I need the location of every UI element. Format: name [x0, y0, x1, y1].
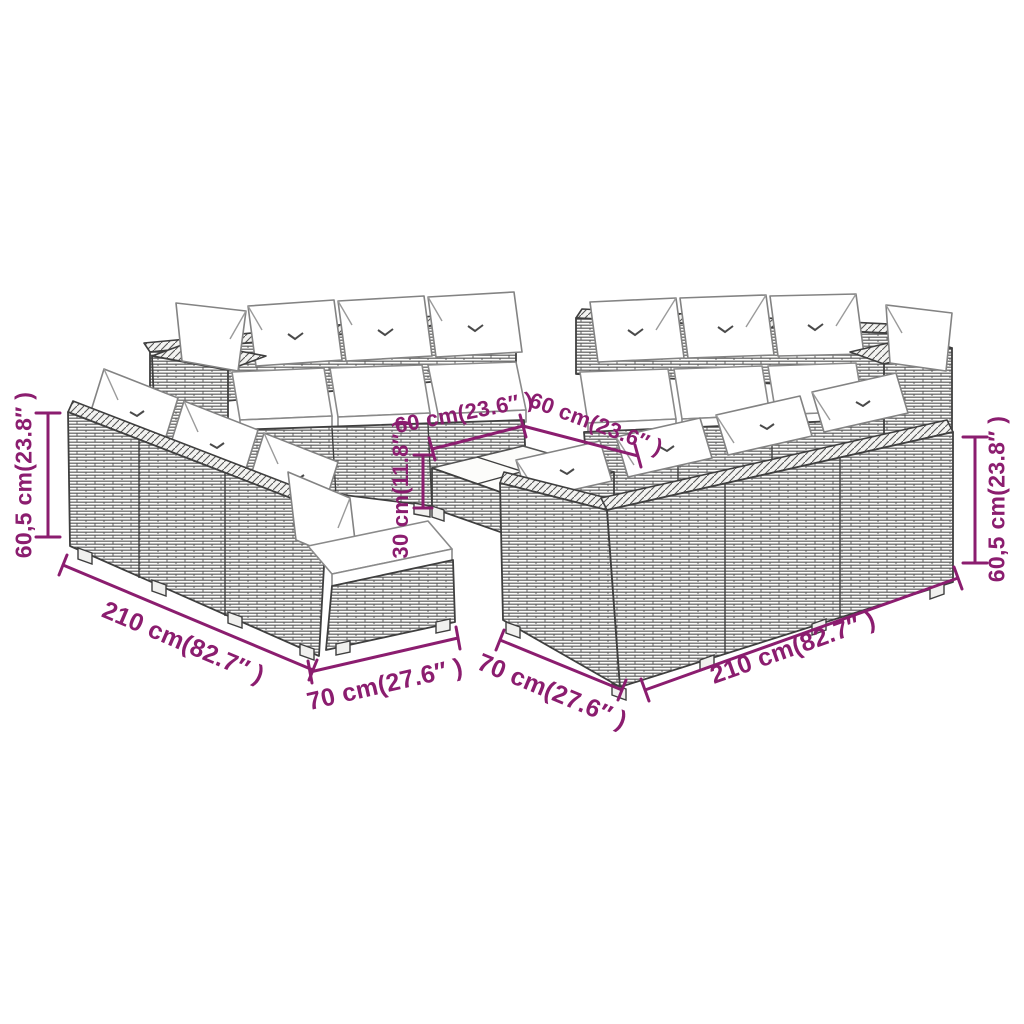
dim-label-table-height: 30 cm(11.8″ )	[388, 419, 414, 558]
back-pillow	[338, 296, 432, 361]
side-outer-panel	[500, 483, 620, 687]
furniture-illustration	[0, 0, 1024, 1024]
dim-line-left-height	[36, 413, 60, 537]
foot	[336, 641, 350, 655]
dim-label-right-height: 60,5 cm(23.8″ )	[984, 416, 1011, 582]
dim-label-left-height: 60,5 cm(23.8″ )	[11, 392, 38, 558]
foot	[436, 619, 450, 633]
corner-pillow	[176, 303, 246, 371]
corner-pillow	[886, 305, 952, 371]
product-dimension-diagram: 60,5 cm(23.8″ ) 60,5 cm(23.8″ ) 210 cm(8…	[0, 0, 1024, 1024]
back-pillow	[428, 292, 522, 357]
seat-cushion	[232, 368, 332, 420]
